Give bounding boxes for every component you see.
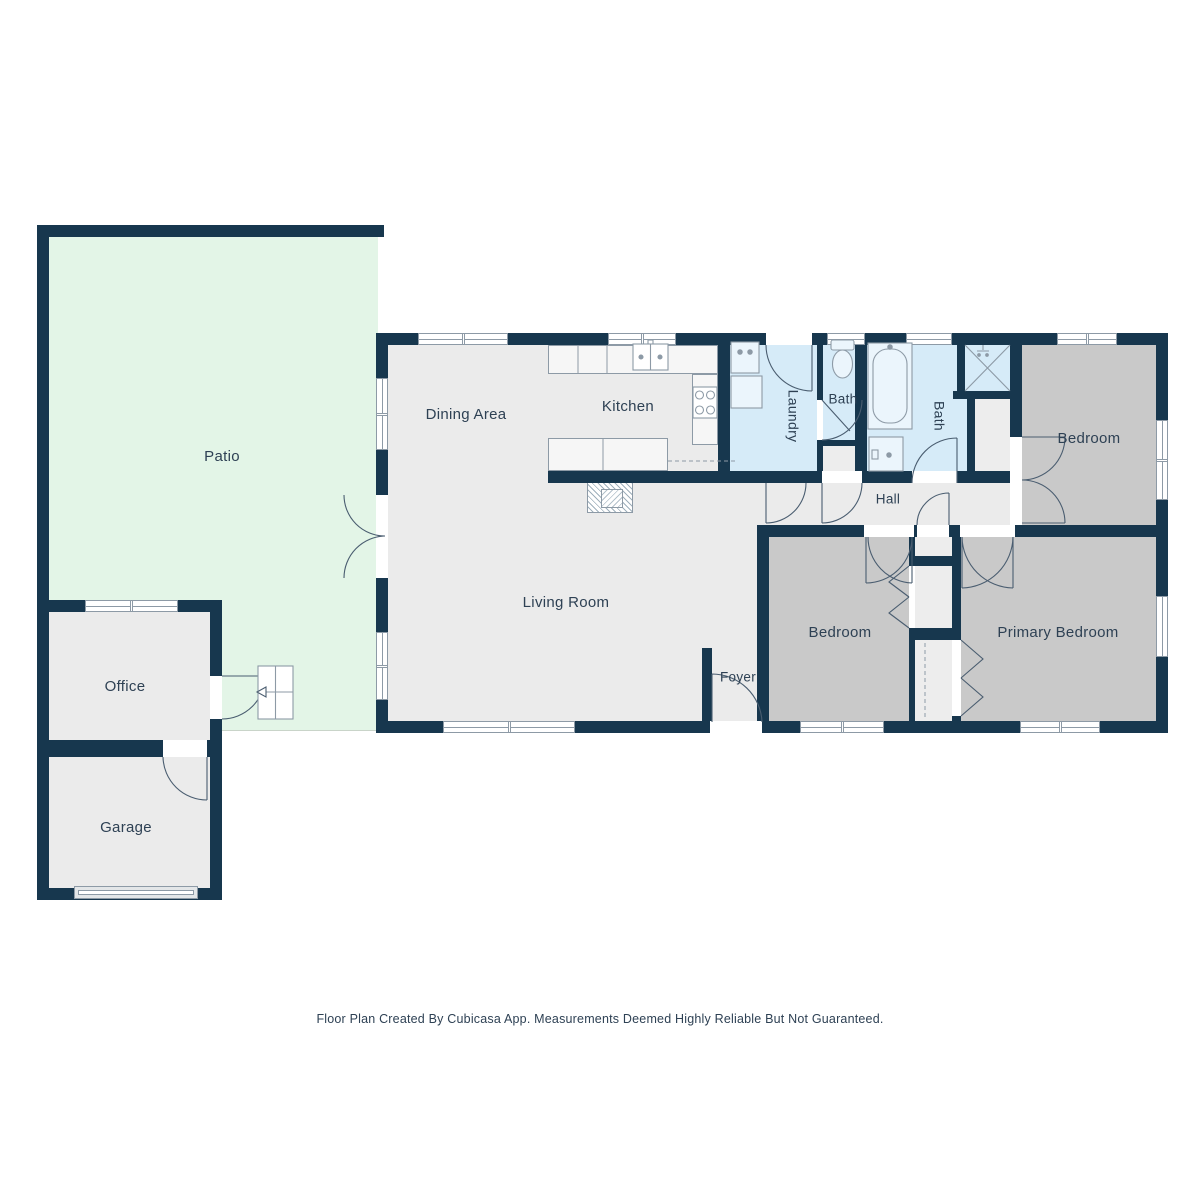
fireplace-icon — [587, 480, 633, 513]
wall — [953, 391, 1010, 399]
wall — [952, 537, 961, 640]
door-gap — [210, 676, 222, 719]
bedroom-bottom-label: Bedroom — [809, 625, 872, 642]
office-label: Office — [105, 679, 146, 696]
window — [376, 378, 388, 450]
bath-closet-area — [975, 399, 1010, 475]
wall — [909, 628, 915, 721]
wall — [957, 345, 965, 391]
wall — [702, 648, 712, 721]
window — [85, 600, 178, 612]
living-room-label: Living Room — [523, 595, 610, 612]
foyer-label: Foyer — [720, 671, 756, 686]
window — [827, 333, 865, 345]
fireplace-firebox — [601, 489, 623, 508]
dining-area-label: Dining Area — [426, 407, 507, 424]
wall — [915, 556, 952, 566]
door-gap — [1010, 437, 1022, 523]
office-area — [49, 612, 210, 740]
hall-closet-area — [915, 537, 952, 556]
patio-label: Patio — [204, 449, 240, 466]
disclaimer-text: Floor Plan Created By Cubicasa App. Meas… — [0, 1012, 1200, 1026]
door-gap — [766, 333, 812, 345]
wall — [37, 225, 384, 237]
kitchen-counter-side — [692, 374, 718, 445]
kitchen-label: Kitchen — [602, 399, 654, 416]
wall — [757, 525, 769, 721]
door-gap — [710, 721, 762, 733]
window — [800, 721, 884, 733]
wall — [915, 628, 952, 640]
door-gap — [912, 471, 957, 483]
wall — [1010, 333, 1022, 437]
primary-bedroom-label: Primary Bedroom — [997, 625, 1118, 642]
wall — [718, 333, 730, 483]
kitchen-counter — [548, 345, 718, 374]
kitchen-island — [548, 438, 668, 471]
laundry-area — [730, 345, 817, 475]
primary-closet-area — [915, 640, 952, 721]
wall — [952, 716, 961, 721]
wall — [967, 399, 975, 475]
window — [1156, 596, 1168, 657]
wall — [37, 225, 49, 612]
bedroom-closet-area — [915, 566, 952, 628]
window — [418, 333, 508, 345]
bedroom-top-right-label: Bedroom — [1058, 431, 1121, 448]
door-gap — [864, 525, 914, 537]
floor-plan: Patio Dining Area Kitchen Living Room Fo… — [0, 0, 1200, 1200]
garage-door-panel — [78, 890, 194, 895]
window — [376, 632, 388, 700]
wall — [817, 333, 823, 400]
door-gap — [917, 525, 949, 537]
bath-small-label: Bath — [829, 393, 858, 408]
window — [608, 333, 676, 345]
door-gap — [909, 566, 915, 628]
window — [906, 333, 952, 345]
wall — [757, 525, 1156, 537]
window — [1156, 420, 1168, 500]
door-gap — [822, 471, 862, 483]
laundry-label: Laundry — [785, 390, 800, 443]
bath-main-label: Bath — [931, 401, 946, 431]
open-connector-area — [388, 471, 548, 483]
window — [443, 721, 575, 733]
window — [1020, 721, 1100, 733]
window — [1057, 333, 1117, 345]
door-gap — [960, 525, 1015, 537]
door-gap — [952, 640, 961, 716]
garage-door — [74, 886, 198, 899]
door-gap — [376, 495, 388, 578]
door-gap — [163, 740, 207, 757]
door-gap — [817, 400, 823, 440]
wall — [1156, 333, 1168, 733]
hall-label: Hall — [876, 493, 900, 508]
garage-label: Garage — [100, 820, 152, 837]
